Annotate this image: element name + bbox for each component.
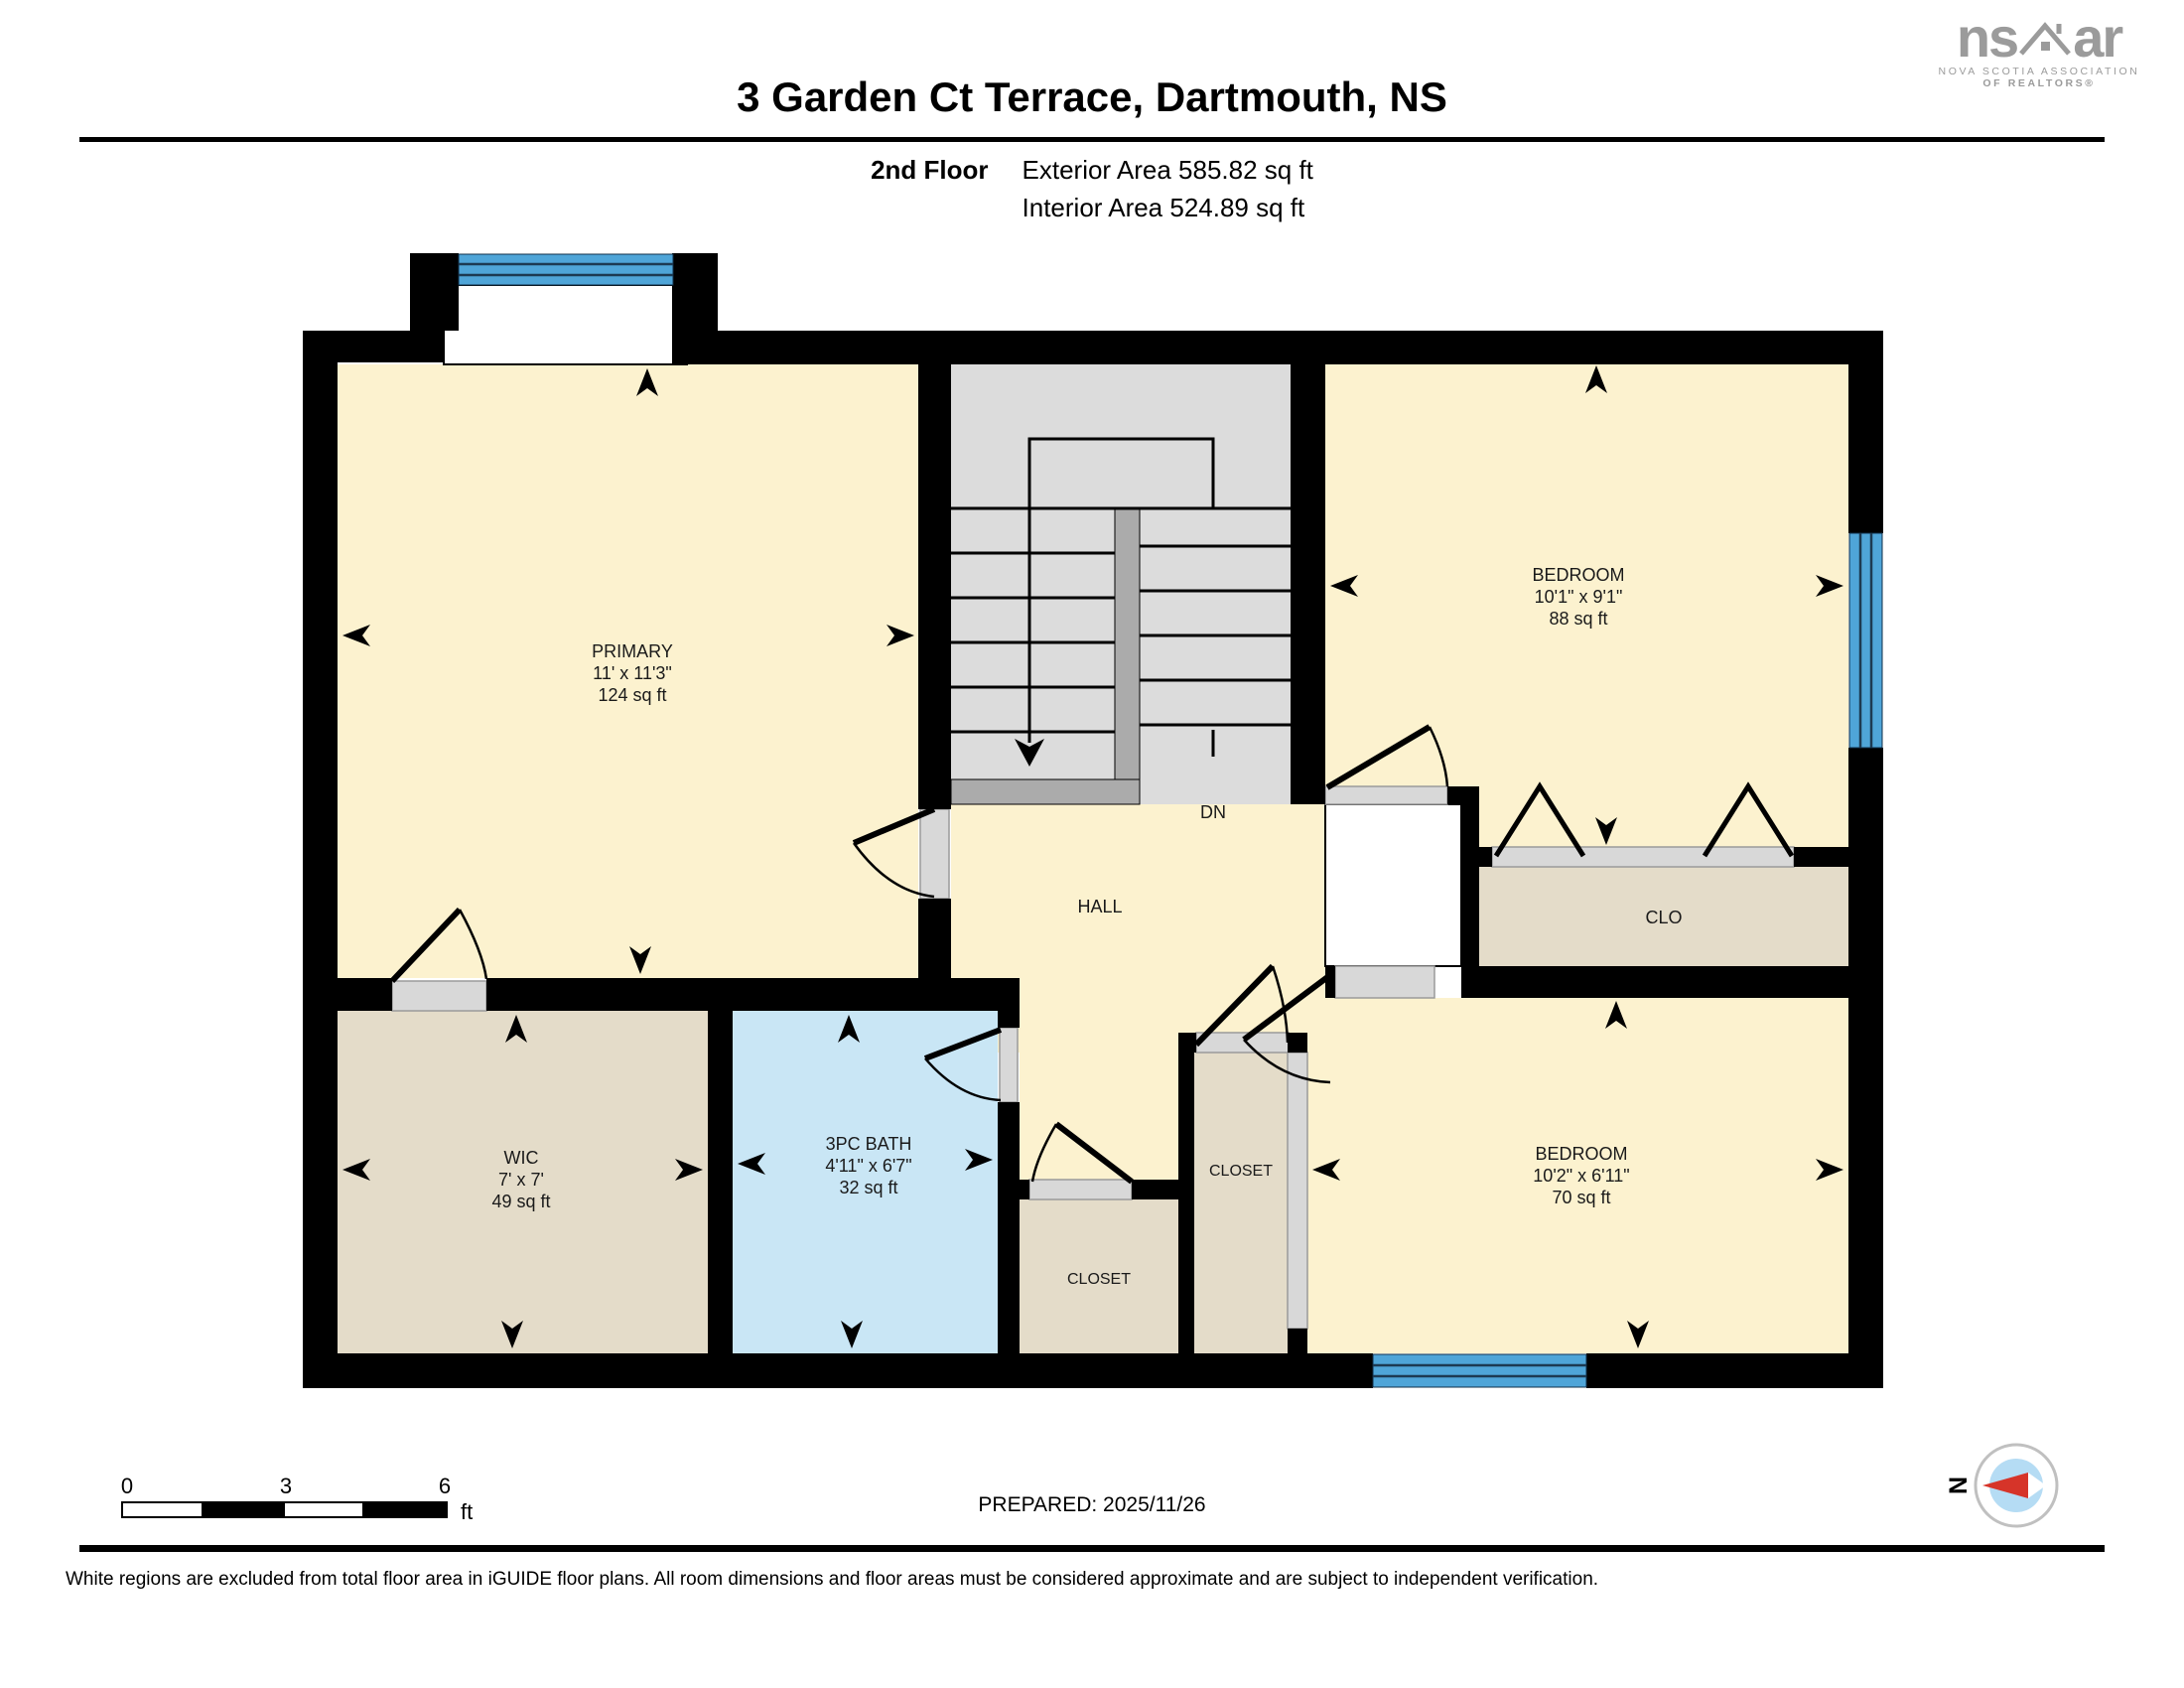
room-closet2 bbox=[1194, 1053, 1288, 1353]
bath-name: 3PC BATH bbox=[826, 1134, 912, 1154]
staircase bbox=[951, 362, 1291, 804]
primary-dims: 11' x 11'3" bbox=[593, 663, 672, 683]
clo-label: CLO bbox=[1645, 908, 1682, 927]
closet2-label: CLOSET bbox=[1209, 1163, 1273, 1180]
footer-rule bbox=[79, 1545, 2105, 1552]
wic-dims: 7' x 7' bbox=[498, 1170, 544, 1190]
header-rule bbox=[79, 137, 2105, 142]
excluded-region-center bbox=[1325, 804, 1461, 966]
wic-name: WIC bbox=[504, 1148, 539, 1168]
nsar-logo-ns: ns bbox=[1957, 14, 2017, 62]
compass-north-label: N bbox=[1945, 1477, 1973, 1494]
stair-divider bbox=[1115, 508, 1140, 779]
nsar-house-icon bbox=[2017, 18, 2073, 62]
interior-area-text: Interior Area 524.89 sq ft bbox=[1023, 193, 1313, 223]
stairs-dn-label: DN bbox=[1200, 802, 1226, 822]
floor-summary: 2nd Floor Exterior Area 585.82 sq ft Int… bbox=[0, 155, 2184, 223]
floor-plan-page: { "header": { "title": "3 Garden Ct Terr… bbox=[0, 0, 2184, 1688]
primary-area: 124 sq ft bbox=[598, 685, 666, 705]
bedroom1-area: 88 sq ft bbox=[1549, 609, 1607, 629]
disclaimer-text: White regions are excluded from total fl… bbox=[66, 1569, 1654, 1591]
nsar-logo-word: ns ar bbox=[1910, 14, 2168, 62]
floor-plan-canvas: PRIMARY 11' x 11'3" 124 sq ft BEDROOM 10… bbox=[0, 0, 2184, 1688]
stair-bottom-rail bbox=[951, 779, 1140, 804]
closet1-label: CLOSET bbox=[1067, 1271, 1131, 1288]
page-title: 3 Garden Ct Terrace, Dartmouth, NS bbox=[0, 73, 2184, 121]
nsar-tagline-2: OF REALTORS® bbox=[1910, 77, 2168, 89]
excluded-region-top bbox=[444, 285, 687, 364]
window-bottom bbox=[1373, 1354, 1586, 1387]
wic-area: 49 sq ft bbox=[491, 1192, 550, 1211]
nsar-logo-ar: ar bbox=[2073, 14, 2121, 62]
bedroom2-dims: 10'2" x 6'11" bbox=[1533, 1166, 1629, 1186]
window-top bbox=[459, 254, 673, 285]
nsar-tagline-1: NOVA SCOTIA ASSOCIATION bbox=[1910, 66, 2168, 77]
bedroom2-name: BEDROOM bbox=[1535, 1144, 1627, 1164]
exterior-area-text: Exterior Area 585.82 sq ft bbox=[1023, 155, 1313, 186]
bedroom1-dims: 10'1" x 9'1" bbox=[1535, 587, 1623, 607]
primary-name: PRIMARY bbox=[592, 641, 673, 661]
bath-area: 32 sq ft bbox=[839, 1178, 897, 1197]
bath-dims: 4'11" x 6'7" bbox=[825, 1156, 911, 1176]
prepared-date: PREPARED: 2025/11/26 bbox=[0, 1493, 2184, 1517]
room-hall-strip bbox=[1020, 1053, 1178, 1180]
hall-label: HALL bbox=[1077, 897, 1122, 916]
bedroom2-area: 70 sq ft bbox=[1552, 1188, 1610, 1207]
bedroom1-name: BEDROOM bbox=[1532, 565, 1624, 585]
nsar-logo: ns ar NOVA SCOTIA ASSOCIATION OF REALTOR… bbox=[1910, 14, 2168, 89]
window-right bbox=[1849, 533, 1882, 748]
floor-label: 2nd Floor bbox=[871, 155, 988, 186]
closet2-opening bbox=[1288, 1053, 1307, 1329]
